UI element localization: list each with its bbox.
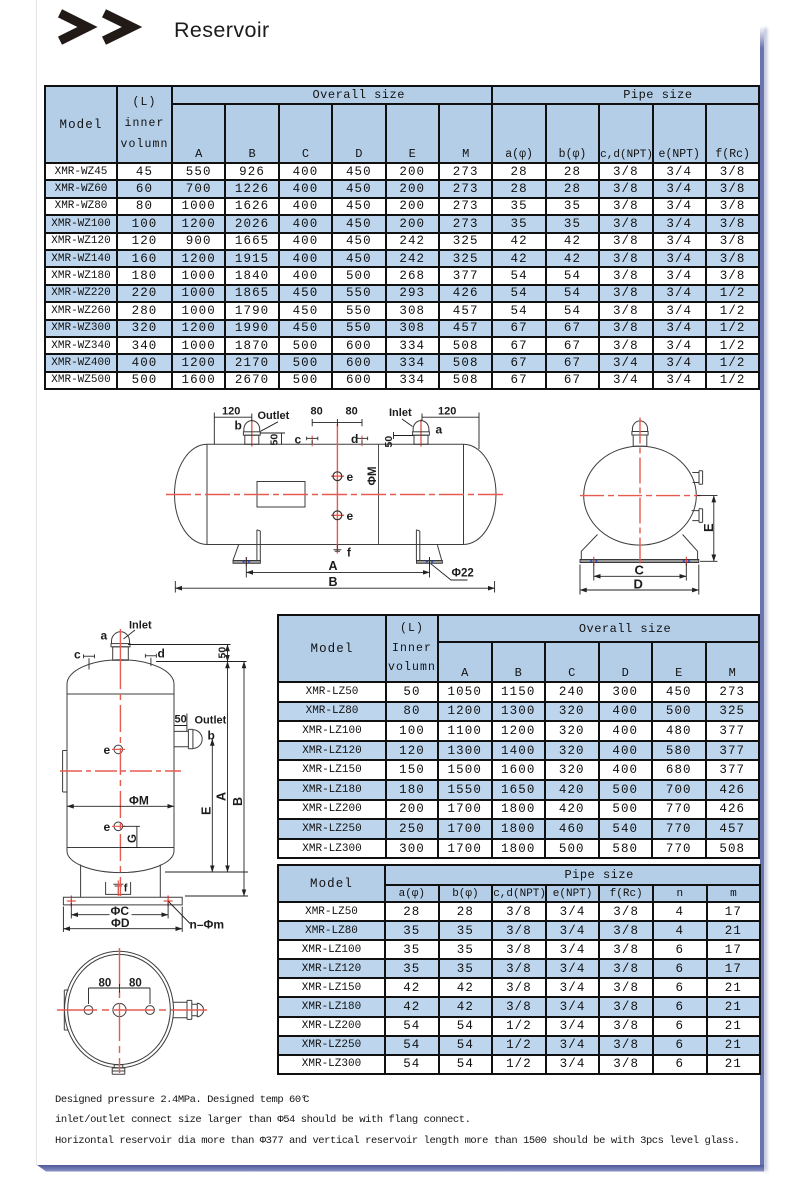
svg-text:c: c — [295, 433, 302, 447]
svg-text:D: D — [634, 577, 643, 592]
svg-text:Φ22: Φ22 — [452, 567, 474, 579]
svg-text:E: E — [701, 523, 716, 532]
svg-text:G: G — [127, 834, 139, 843]
svg-text:a: a — [436, 423, 443, 437]
svg-text:50: 50 — [217, 647, 229, 659]
svg-text:80: 80 — [311, 406, 323, 418]
svg-text:e: e — [347, 470, 354, 484]
svg-text:50: 50 — [175, 714, 187, 726]
svg-text:d: d — [158, 647, 165, 661]
svg-text:e: e — [104, 820, 111, 834]
svg-text:A: A — [215, 792, 229, 801]
svg-text:A: A — [329, 559, 338, 573]
svg-text:e: e — [104, 743, 111, 757]
svg-text:Inlet: Inlet — [389, 407, 412, 419]
svg-text:C: C — [635, 562, 645, 577]
svg-text:ΦM: ΦM — [367, 466, 379, 485]
svg-text:a: a — [101, 629, 108, 643]
svg-text:c: c — [74, 648, 81, 662]
svg-text:n–Φm: n–Φm — [190, 918, 225, 932]
svg-text:f: f — [347, 548, 351, 560]
svg-text:b: b — [235, 419, 242, 433]
svg-text:E: E — [199, 807, 213, 815]
svg-text:Outlet: Outlet — [195, 715, 227, 727]
svg-text:80: 80 — [346, 406, 358, 418]
svg-text:b: b — [208, 729, 215, 743]
svg-text:ΦD: ΦD — [111, 916, 130, 930]
svg-text:50: 50 — [383, 436, 395, 448]
svg-text:f: f — [124, 883, 128, 895]
svg-text:120: 120 — [438, 406, 456, 418]
svg-text:80: 80 — [99, 978, 112, 990]
svg-text:120: 120 — [222, 406, 240, 418]
svg-text:Outlet: Outlet — [258, 410, 290, 422]
svg-text:d: d — [351, 432, 358, 446]
svg-text:50: 50 — [269, 434, 281, 446]
svg-text:B: B — [329, 575, 338, 589]
svg-text:Inlet: Inlet — [129, 620, 152, 632]
svg-text:e: e — [347, 509, 354, 523]
svg-text:B: B — [231, 797, 245, 806]
svg-text:ΦM: ΦM — [129, 793, 149, 807]
svg-text:80: 80 — [129, 978, 142, 990]
